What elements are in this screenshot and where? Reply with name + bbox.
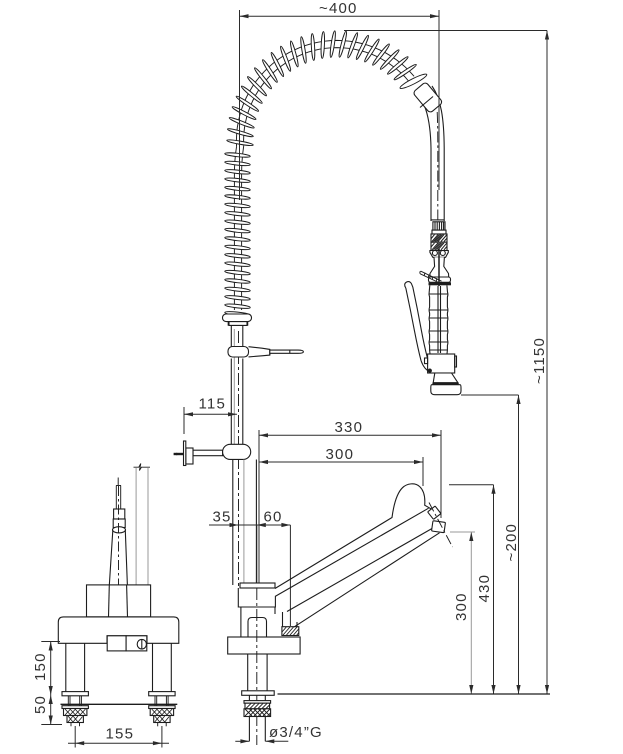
svg-text:~1150: ~1150 bbox=[531, 337, 548, 384]
svg-text:330: 330 bbox=[335, 419, 364, 436]
svg-text:50: 50 bbox=[32, 695, 49, 714]
svg-text:115: 115 bbox=[199, 396, 227, 413]
svg-text:150: 150 bbox=[32, 652, 49, 681]
svg-text:~200: ~200 bbox=[503, 523, 520, 562]
svg-text:35: 35 bbox=[213, 509, 232, 526]
svg-text:60: 60 bbox=[264, 509, 283, 526]
svg-text:430: 430 bbox=[476, 574, 493, 603]
svg-text:155: 155 bbox=[106, 726, 135, 743]
svg-text:300: 300 bbox=[326, 446, 355, 463]
svg-text:300: 300 bbox=[453, 592, 470, 621]
svg-text:ø3/4”G: ø3/4”G bbox=[269, 724, 323, 741]
svg-text:~400: ~400 bbox=[319, 0, 358, 17]
